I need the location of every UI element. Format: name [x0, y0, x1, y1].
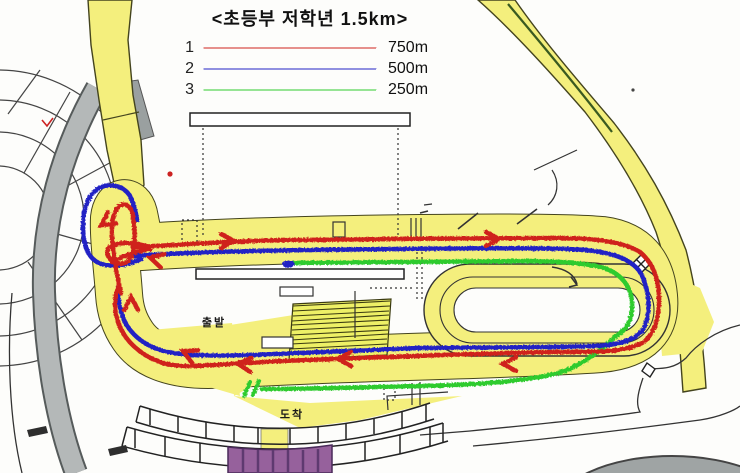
legend-row-1: 1 750m: [178, 37, 428, 58]
legend-line-green: [202, 85, 380, 95]
legend-line-blue: [202, 64, 380, 74]
legend-rank-2: 2: [178, 60, 194, 78]
finish-label: 도착: [280, 407, 304, 421]
legend-row-2: 2 500m: [178, 58, 428, 79]
legend-line-red: [202, 43, 380, 53]
legend-rank-3: 3: [178, 81, 194, 99]
stands-vip-section: [228, 445, 332, 473]
left-path-line: [9, 293, 22, 473]
red-dot-marker: [167, 171, 172, 176]
start-label: 출발: [202, 315, 226, 329]
course-map-page: 출발 도착 <초등부 저학년 1.5km> 1 750m 2 500m 3 25…: [0, 0, 740, 473]
legend-distance-1: 750m: [388, 39, 428, 57]
page-title: <초등부 저학년 1.5km>: [150, 5, 470, 31]
flag-marker-icon: [642, 363, 655, 377]
legend-row-3: 3 250m: [178, 79, 428, 100]
small-dot-marker: [631, 88, 634, 91]
legend-distance-3: 250m: [388, 81, 428, 99]
legend-rank-1: 1: [178, 39, 194, 57]
legend-distance-2: 500m: [388, 60, 428, 78]
pond: [554, 456, 740, 473]
legend: 1 750m 2 500m 3 250m: [178, 37, 428, 100]
